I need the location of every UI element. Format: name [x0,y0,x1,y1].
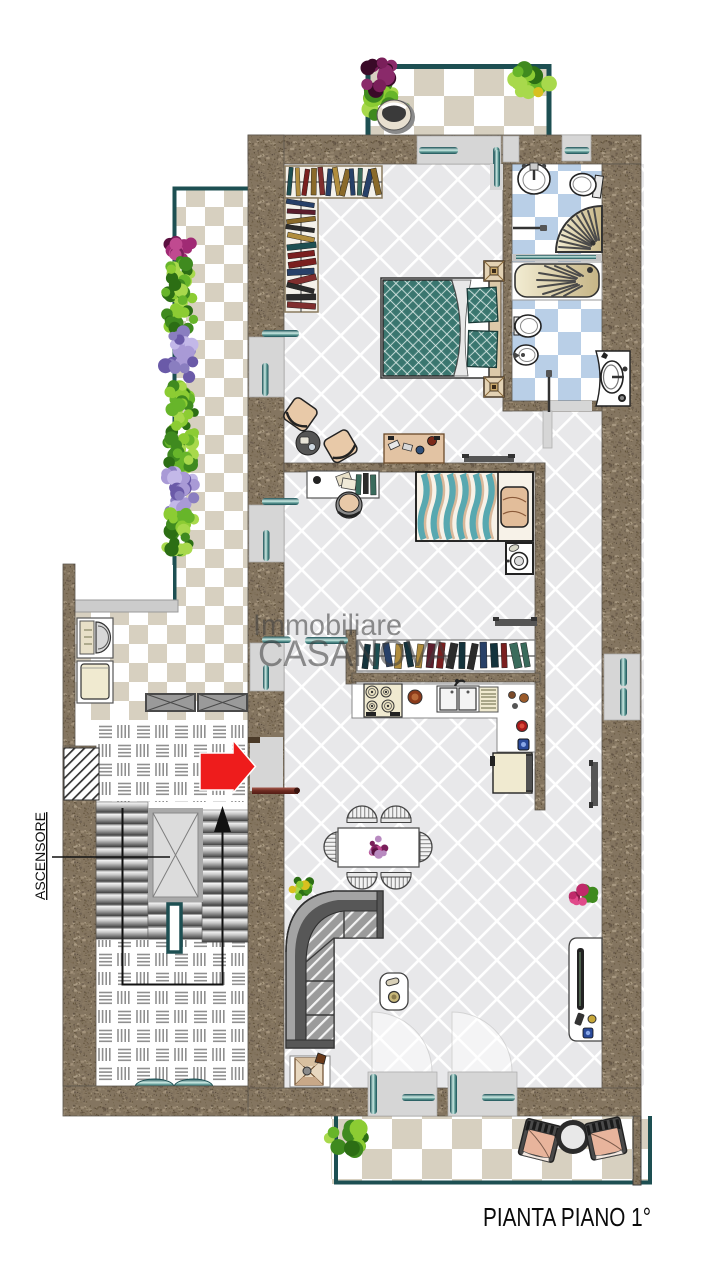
svg-text:PIANTA PIANO 1°: PIANTA PIANO 1° [483,1202,651,1232]
svg-text:ASCENSORE: ASCENSORE [32,812,48,900]
svg-text:CASANOVA: CASANOVA [258,633,450,674]
